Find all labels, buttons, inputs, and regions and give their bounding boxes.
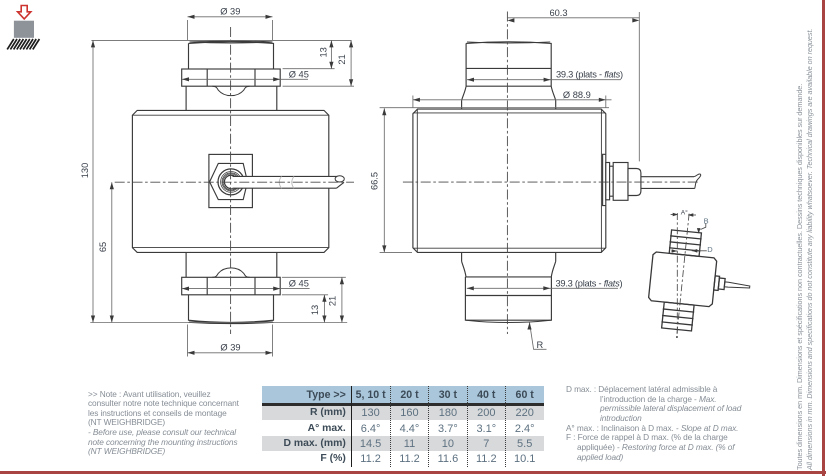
svg-text:39.3 (plats - flats): 39.3 (plats - flats) [556, 278, 623, 288]
svg-text:R: R [537, 340, 544, 350]
svg-text:13: 13 [319, 47, 329, 57]
svg-text:B: B [704, 216, 709, 225]
svg-text:13: 13 [310, 305, 320, 315]
svg-text:D: D [707, 245, 713, 254]
svg-text:Ø 39: Ø 39 [220, 7, 240, 17]
svg-text:66.5: 66.5 [370, 172, 380, 190]
svg-text:A°: A° [681, 208, 688, 216]
svg-text:130: 130 [80, 163, 90, 179]
svg-text:Ø 45: Ø 45 [289, 279, 309, 289]
svg-text:60.3: 60.3 [549, 8, 567, 18]
svg-text:Ø 39: Ø 39 [220, 343, 240, 353]
svg-text:Ø 45: Ø 45 [289, 70, 309, 80]
svg-text:65: 65 [98, 242, 108, 252]
svg-text:21: 21 [327, 296, 337, 306]
svg-text:Ø 88.9: Ø 88.9 [563, 90, 591, 100]
svg-text:21: 21 [337, 54, 347, 64]
svg-text:39.3 (plats - flats): 39.3 (plats - flats) [556, 70, 623, 80]
